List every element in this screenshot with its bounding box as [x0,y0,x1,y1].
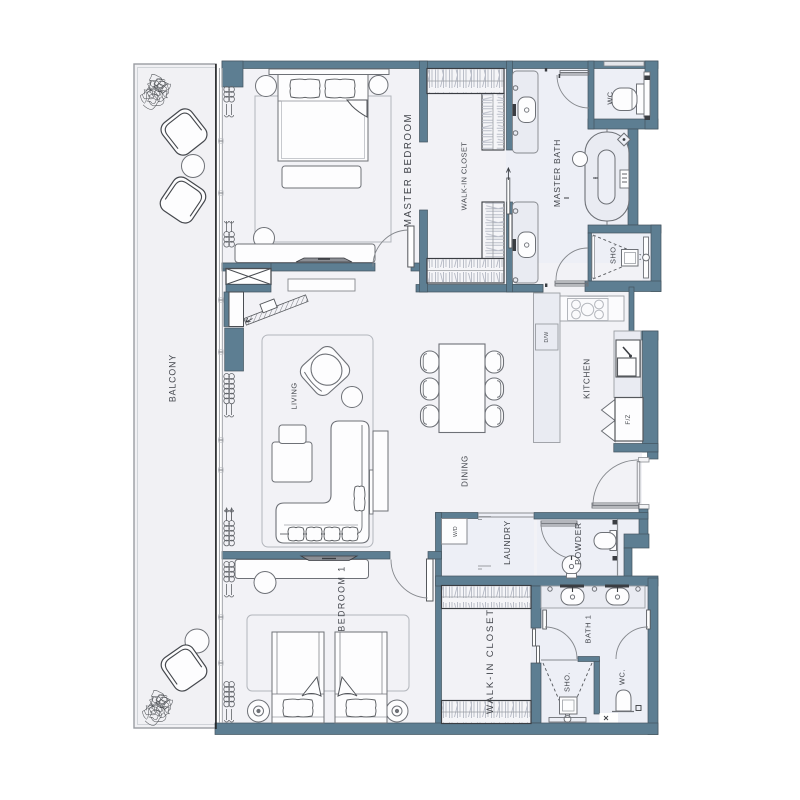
svg-text:SHO.: SHO. [608,244,617,264]
svg-text:POWDER: POWDER [573,522,583,565]
svg-text:BEDROOM 1: BEDROOM 1 [336,565,346,631]
svg-text:LAUNDRY: LAUNDRY [502,520,512,565]
svg-text:BALCONY: BALCONY [167,354,177,402]
svg-text:LIVING: LIVING [289,382,298,409]
svg-text:D/W: D/W [544,332,550,343]
svg-text:BATH 1: BATH 1 [583,615,592,644]
svg-text:WC: WC [605,91,614,104]
svg-text:MASTER BEDROOM: MASTER BEDROOM [403,113,414,227]
svg-text:WALK-IN CLOSET: WALK-IN CLOSET [485,608,496,714]
svg-text:MASTER BATH: MASTER BATH [552,139,562,207]
svg-text:SHO.: SHO. [562,672,571,692]
svg-text:KITCHEN: KITCHEN [583,358,592,399]
svg-text:WC.: WC. [617,669,626,685]
svg-text:F/Z: F/Z [625,414,632,424]
svg-text:WALK-IN CLOSET: WALK-IN CLOSET [459,142,468,211]
svg-text:W/D: W/D [453,526,459,537]
svg-text:DINING: DINING [461,455,470,487]
